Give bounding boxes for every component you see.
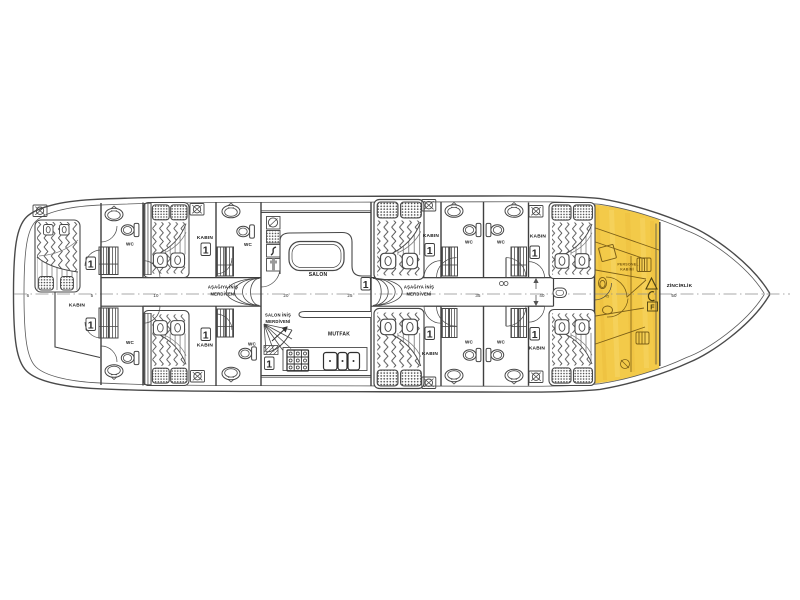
svg-text:WC: WC (497, 240, 506, 245)
svg-text:WC: WC (497, 340, 506, 345)
svg-text:50: 50 (671, 293, 677, 298)
svg-text:KABIN: KABIN (197, 343, 214, 349)
svg-text:MERDİVENİ: MERDİVENİ (210, 292, 235, 297)
svg-text:KABIN: KABIN (197, 235, 214, 241)
svg-text:1: 1 (203, 244, 209, 256)
svg-text:MERDİVENİ: MERDİVENİ (265, 319, 290, 324)
svg-text:ZİNCİRLİK: ZİNCİRLİK (667, 282, 693, 289)
svg-text:MERDİVENİ: MERDİVENİ (406, 292, 431, 297)
svg-text:25: 25 (347, 293, 353, 298)
svg-text:1: 1 (363, 279, 369, 291)
svg-text:PERSONEL: PERSONEL (617, 263, 639, 267)
svg-text:WC: WC (126, 242, 135, 247)
svg-text:20: 20 (283, 293, 289, 298)
svg-text:6: 6 (27, 293, 30, 298)
svg-text:WC: WC (465, 340, 474, 345)
svg-text:KABIN: KABIN (422, 351, 439, 357)
svg-text:1: 1 (88, 258, 94, 270)
svg-text:10: 10 (153, 293, 159, 298)
svg-text:WC: WC (248, 342, 257, 347)
svg-text:KABIN: KABIN (529, 346, 546, 352)
svg-text:AŞAĞIYA İNİŞ: AŞAĞIYA İNİŞ (404, 285, 434, 290)
svg-text:1: 1 (88, 319, 94, 331)
svg-text:1: 1 (266, 358, 272, 370)
svg-text:1: 1 (427, 245, 433, 257)
svg-text:SALON: SALON (309, 272, 328, 278)
svg-text:F: F (650, 305, 655, 312)
svg-text:1: 1 (427, 328, 433, 340)
svg-text:KABIN: KABIN (423, 233, 440, 239)
svg-text:KABİNİ: KABİNİ (620, 268, 634, 272)
svg-text:AŞAĞIYA İNİŞ: AŞAĞIYA İNİŞ (208, 285, 238, 290)
svg-text:40: 40 (539, 293, 545, 298)
svg-text:WC: WC (465, 240, 474, 245)
svg-text:5: 5 (91, 293, 94, 298)
svg-text:WC: WC (244, 242, 253, 247)
svg-text:KABIN: KABIN (530, 234, 547, 240)
svg-text:1: 1 (203, 329, 209, 341)
svg-text:35: 35 (475, 293, 481, 298)
svg-text:MUTFAK: MUTFAK (328, 332, 350, 338)
svg-text:1: 1 (532, 329, 538, 341)
svg-text:KABIN: KABIN (69, 303, 86, 309)
svg-text:SALON İNİŞ: SALON İNİŞ (265, 313, 291, 318)
svg-text:WC: WC (126, 340, 135, 345)
svg-text:1: 1 (532, 247, 538, 259)
svg-text:45: 45 (605, 294, 610, 299)
